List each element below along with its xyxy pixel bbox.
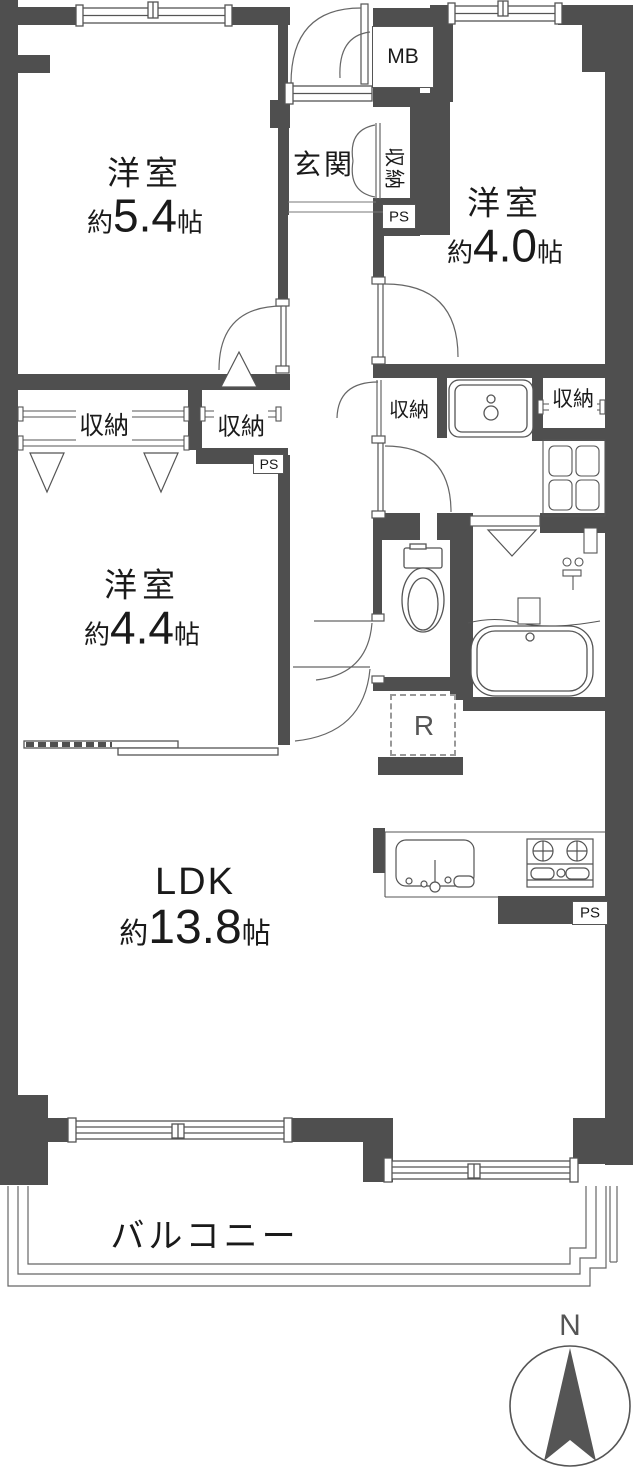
closet-label-entrance: 収納	[374, 155, 418, 184]
wall	[287, 1118, 363, 1142]
wall	[540, 513, 605, 533]
wall	[450, 540, 463, 700]
window	[448, 1, 562, 24]
north-arrow	[544, 1348, 596, 1461]
kitchen-counter	[385, 832, 605, 897]
bath-door-track	[470, 516, 540, 526]
wall	[363, 1118, 393, 1182]
entrance-label: 玄関	[293, 143, 355, 183]
sliding-door	[24, 741, 278, 755]
room-bedroom1-label: 洋室 約5.4帖	[87, 157, 203, 240]
closet-door-arc	[352, 161, 375, 197]
pipe-space-label: PS	[580, 905, 600, 922]
meter-box-label: MB	[387, 45, 419, 69]
closet-label-left: 収納	[76, 406, 132, 442]
closet-label-washroom: 収納	[389, 394, 429, 423]
door-jamb	[372, 357, 385, 364]
wall	[378, 757, 463, 775]
door-arc	[291, 8, 361, 84]
closet-label-east: 収納	[549, 383, 597, 413]
bathtub-icon	[468, 528, 600, 696]
wall	[498, 896, 633, 924]
door-arc	[219, 306, 283, 370]
floor-plan: 洋室 約5.4帖 洋室 約4.0帖 洋室 約4.4帖 LDK 約13.8帖 玄関…	[0, 0, 633, 1471]
wall	[0, 7, 82, 25]
wall	[463, 697, 605, 711]
shower-mixer-icon	[563, 558, 583, 590]
closet-label-right: 収納	[214, 407, 268, 442]
washing-machine-pan-icon	[543, 440, 605, 516]
door-leaf	[281, 303, 286, 369]
wall	[463, 513, 473, 708]
pipe-space-label: PS	[260, 456, 279, 472]
door-leaf	[378, 443, 383, 513]
door-arc	[340, 32, 370, 78]
door-arc	[385, 284, 458, 357]
folding-door-icon	[144, 453, 178, 492]
balcony-rail	[8, 1186, 617, 1286]
bath-niche	[518, 598, 540, 624]
wall	[373, 677, 463, 691]
door-leaf	[361, 4, 368, 84]
room-ldk-label: LDK 約13.8帖	[119, 863, 270, 953]
wall	[188, 388, 202, 450]
door-leaf	[378, 281, 383, 358]
wall	[18, 1118, 73, 1142]
room-bedroom2-label: 洋室 約4.0帖	[447, 187, 563, 270]
folding-door-icon	[488, 530, 536, 556]
stove-icon	[527, 839, 593, 887]
window	[68, 1118, 292, 1142]
compass-icon	[510, 1346, 630, 1466]
wall	[0, 55, 50, 73]
wall	[0, 374, 290, 390]
door-arc	[316, 623, 372, 680]
wall	[373, 8, 433, 28]
north-label: N	[559, 1309, 581, 1343]
closet-door-arc	[352, 125, 375, 161]
toilet-icon	[402, 544, 444, 632]
wall	[0, 0, 18, 1145]
entrance-threshold	[285, 83, 372, 104]
window	[76, 2, 232, 26]
wall	[373, 364, 605, 378]
window	[384, 1158, 578, 1182]
wall	[605, 70, 633, 1165]
door-arc	[385, 446, 451, 512]
kitchen-sink-icon	[396, 840, 474, 892]
wall	[278, 455, 290, 745]
refrigerator-label: R	[414, 710, 434, 742]
washbasin-icon	[449, 380, 533, 437]
wall	[582, 22, 633, 72]
door-arc	[295, 669, 370, 741]
wall	[373, 828, 385, 873]
balcony-label: バルコニー	[110, 1209, 299, 1258]
wall	[228, 7, 290, 25]
wall	[532, 428, 605, 441]
wall	[437, 377, 447, 438]
wall	[573, 1118, 633, 1164]
closet-door-arc	[337, 382, 378, 418]
door-jamb	[276, 366, 289, 373]
bath-counter	[468, 620, 600, 627]
pipe-space-label: PS	[389, 209, 409, 226]
wall	[373, 233, 384, 280]
folding-door-icon	[30, 453, 64, 492]
wall	[278, 93, 289, 215]
wall	[373, 533, 382, 621]
door-jamb	[372, 436, 385, 443]
room-bedroom3-label: 洋室 約4.4帖	[84, 569, 200, 652]
